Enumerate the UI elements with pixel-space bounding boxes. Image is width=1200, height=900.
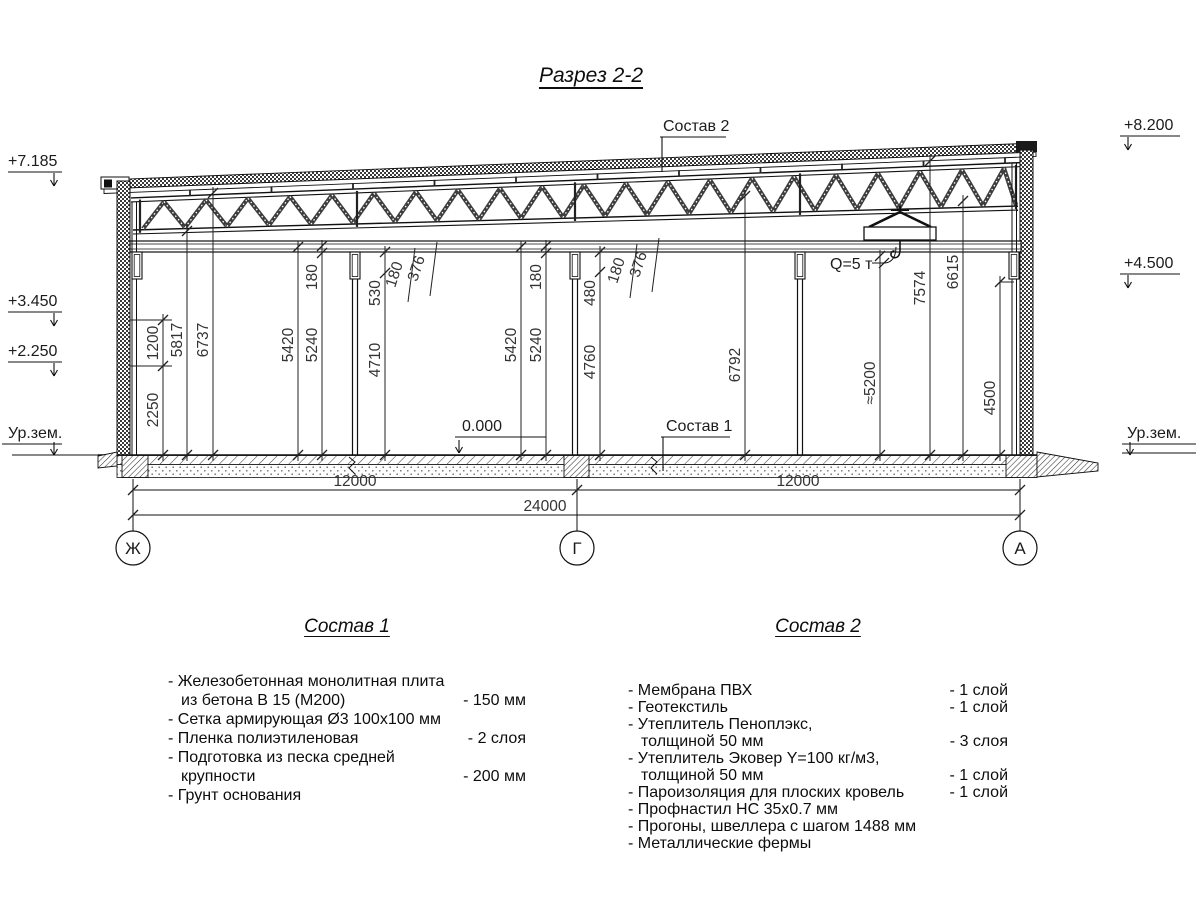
dimension-label: 6615 [945,255,962,289]
left-wall [117,181,130,455]
truss-diagonal-hatch [1004,168,1016,205]
truss-diagonal [773,177,794,212]
elevation-label: +2.250 [8,343,57,360]
right-apron [1037,452,1098,477]
dimension-label: 180 [605,255,629,285]
truss-diagonal-hatch [521,187,542,219]
spec-item-value: - 150 мм [463,691,526,710]
dimension-label: 6792 [727,348,744,382]
dimension-label: 12000 [776,473,819,490]
dimension-label: 4710 [367,342,384,377]
sostav2-items: - Мембрана ПВХ - 1 слой - Геотекстиль - … [628,682,1008,852]
spec-item-name: - Прогоны, швеллера с шагом 1488 мм [628,818,976,835]
dimension-label: 530 [367,280,384,306]
sostav1-callout-label: Состав 1 [666,418,732,435]
dimension-label: 376 [405,254,429,284]
spec-item: - Утеплитель Пеноплэкс, толщиной 50 мм -… [628,716,1008,750]
sostav2-section: Состав 2 - Мембрана ПВХ - 1 слой - Геоте… [628,616,1008,852]
hanger-bracket [1009,252,1019,279]
dimension-label: 5420 [503,327,520,362]
spec-item-name: - Сетка армирующая Ø3 100х100 мм [168,710,516,729]
spec-item-name: - Утеплитель Пеноплэкс, толщиной 50 мм [628,716,976,750]
dimension-label: 24000 [523,498,566,515]
truss-diagonal-hatch [626,183,647,215]
truss-diagonal [857,173,878,209]
elevation-label: +8.200 [1124,117,1173,134]
dimension-label: 7574 [912,270,929,305]
footing-block [122,456,148,478]
hanger-bracket [350,252,360,279]
spec-item-value: - 1 слой [950,682,1008,699]
spec-item: - Железобетонная монолитная плита из бет… [168,672,526,710]
truss-diagonal-hatch [479,188,500,219]
axis-label: Г [572,539,581,558]
spec-item: - Утеплитель Эковер Y=100 кг/м3, толщино… [628,750,1008,784]
spec-item-name: - Геотекстиль [628,699,976,716]
dimension-label: 4760 [582,344,599,379]
spec-item-name: - Профнастил НС 35х0.7 мм [628,801,976,818]
elevation-label: +4.500 [1124,255,1173,272]
ground-level-label: Ур.зем. [1127,425,1181,442]
sostav1-items: - Железобетонная монолитная плита из бет… [168,672,526,805]
axis-label: Ж [125,539,141,558]
truss-diagonal-hatch [437,190,458,221]
spec-item: - Геотекстиль - 1 слой [628,699,1008,716]
dimension-label: ≈5200 [862,361,879,404]
footing-block [1006,456,1037,478]
dimension-label: 480 [582,280,599,306]
spec-item: - Сетка армирующая Ø3 100х100 мм [168,710,526,729]
spec-item-value: - 1 слой [950,699,1008,716]
truss-diagonal [836,175,857,209]
spec-item-value: - 2 слоя [468,729,526,748]
dimension-label: 12000 [333,473,376,490]
dimension-label: 5240 [528,327,545,362]
truss-diagonal-hatch [584,185,605,216]
dimension-label: 1200 [145,325,162,360]
spec-item-value: - 200 мм [463,767,526,786]
dimension-label: 180 [304,264,321,290]
grid-axes: Ж Г А [116,531,1037,565]
dimension-label: 6737 [195,323,212,357]
sostav1-section: Состав 1 - Железобетонная монолитная пли… [168,616,526,805]
roof-edge-block [104,180,112,188]
dimension-label: 5420 [280,327,297,362]
spec-item: - Пленка полиэтиленовая - 2 слоя [168,729,526,748]
sostav2-callout-label: Состав 2 [663,118,729,135]
hanger-bracket [132,252,142,279]
dimension-label: 2250 [145,392,162,427]
truss-diagonal [815,175,836,211]
truss-diagonal-hatch [542,187,563,218]
spec-item-name: - Утеплитель Эковер Y=100 кг/м3, толщино… [628,750,976,784]
hoist-leg [900,212,931,227]
sostav1-title: Состав 1 [168,616,526,640]
ground-level-label: Ур.зем. [8,425,62,442]
spec-item: - Пароизоляция для плоских кровель - 1 с… [628,784,1008,801]
dimension-label: 4500 [982,380,999,415]
spec-item: - Грунт основания [168,786,526,805]
spec-item: - Металлические фермы [628,835,1008,852]
hanger-bracket [570,252,580,279]
horizontal-dimensions: 12000 12000 24000 [133,473,1020,531]
spec-item-value: - 1 слой [950,784,1008,801]
truss-diagonal [878,173,899,208]
hoist-trolley [864,227,936,240]
spec-item-name: - Металлические фермы [628,835,976,852]
axis-label: А [1014,539,1026,558]
dimension-label: 376 [627,250,651,280]
right-wall [1020,150,1033,455]
section-drawing: Q=5 т +7.185 +3.450 +2.250 Ур.зем. +8.20… [0,0,1200,600]
spec-item-name: - Пароизоляция для плоских кровель [628,784,976,801]
spec-item: - Профнастил НС 35х0.7 мм [628,801,1008,818]
truss-diagonal [899,172,920,209]
spec-item: - Подготовка из песка средней крупности … [168,748,526,786]
spec-item: - Прогоны, швеллера с шагом 1488 мм [628,818,1008,835]
elevation-label: +7.185 [8,153,57,170]
floor-slab [12,452,1196,478]
footing-block [564,456,589,478]
crane-capacity-label: Q=5 т [830,256,873,273]
dimension-label: 180 [383,259,407,289]
roof-sheet-band [104,152,1036,194]
spec-item-name: - Грунт основания [168,786,516,805]
hanger-bracket [795,252,805,279]
dimension-label: 5240 [304,327,321,362]
spec-item: - Мембрана ПВХ - 1 слой [628,682,1008,699]
dimension-label: 5817 [169,323,186,357]
spec-item-name: - Мембрана ПВХ [628,682,976,699]
beam-body [130,241,1021,252]
crane-runway-beam [130,241,1021,252]
sostav2-title: Состав 2 [628,616,1008,640]
elevation-label: +3.450 [8,293,57,310]
truss-diagonal-hatch [563,185,584,217]
truss-diagonal [731,178,752,213]
spec-item-value: - 3 слоя [950,733,1008,750]
spec-item-value: - 1 слой [950,767,1008,784]
truss-diagonal-hatch [668,182,689,214]
roof-insulation-band [104,143,1036,189]
truss-diagonal [962,170,983,206]
zero-level-label: 0.000 [462,418,502,435]
spec-item-name: - Пленка полиэтиленовая [168,729,516,748]
dimension-label: 180 [528,264,545,290]
